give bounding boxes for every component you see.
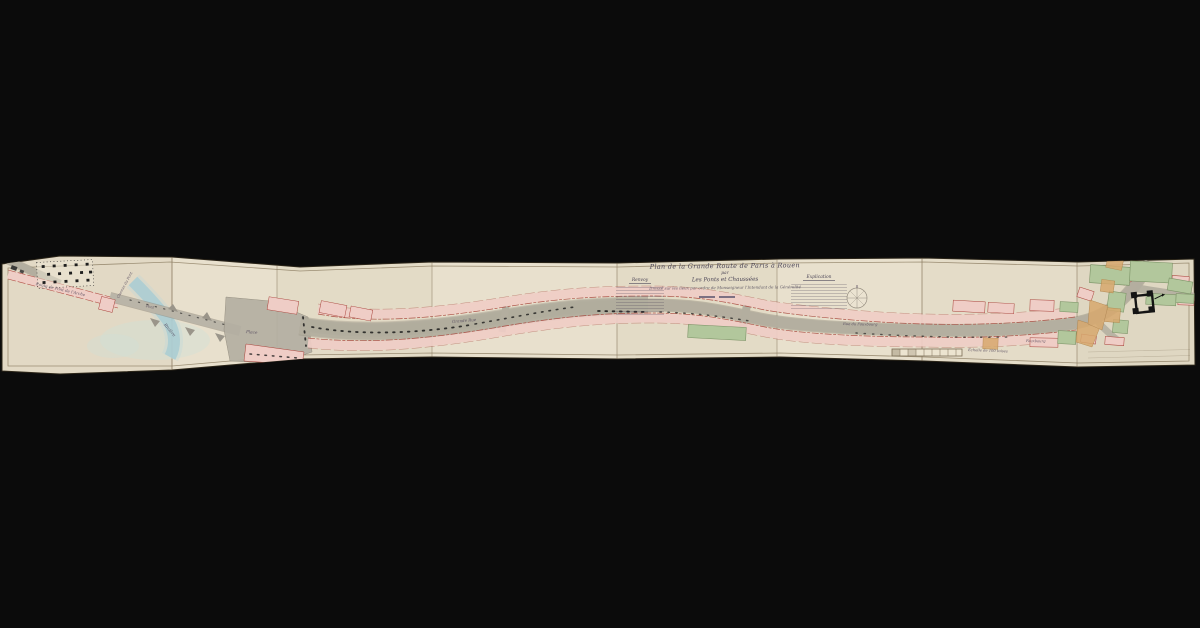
map-label-riviere: Rivière <box>162 323 176 338</box>
legend-right-text-lines <box>791 284 847 310</box>
legend-left-text-lines <box>616 287 664 317</box>
map-label-pont: Pont <box>146 304 155 310</box>
map-title: Plan de la Grande Route de Paris à Rouen… <box>648 261 802 291</box>
map-label-fauxbourg: Fauxbourg <box>1026 339 1046 343</box>
map-title-line3: Dressé sur les lieux par ordre de Monsei… <box>649 284 801 291</box>
map-title-line2: Les Ponts et Chaussées <box>692 277 759 284</box>
map-label-place: Place <box>246 329 258 335</box>
legend-right-heading: Explication <box>803 275 834 281</box>
map-label-grande-rue: Grande Rue <box>452 317 477 324</box>
map-label-chemin: Chemin du Pont <box>116 271 133 299</box>
map-title-par: par <box>721 271 729 276</box>
legend-right: Explication <box>791 263 847 310</box>
legend-left: Renvoy <box>616 266 664 317</box>
text-overlay: Plan de la Grande Route de Paris à Rouen… <box>0 0 1200 628</box>
scanned-map-page: Plan de la Grande Route de Paris à Rouen… <box>0 0 1200 628</box>
map-label-echelle: Échelle de 100 toises <box>968 348 1008 353</box>
map-label-route: Route de Pont de l'Arche <box>35 281 85 297</box>
map-label-rue-fauxbourg: Rue du Fauxbourg <box>843 322 878 327</box>
map-title-line1: Plan de la Grande Route de Paris à Rouen <box>650 261 800 271</box>
legend-left-heading: Renvoy <box>629 278 651 284</box>
